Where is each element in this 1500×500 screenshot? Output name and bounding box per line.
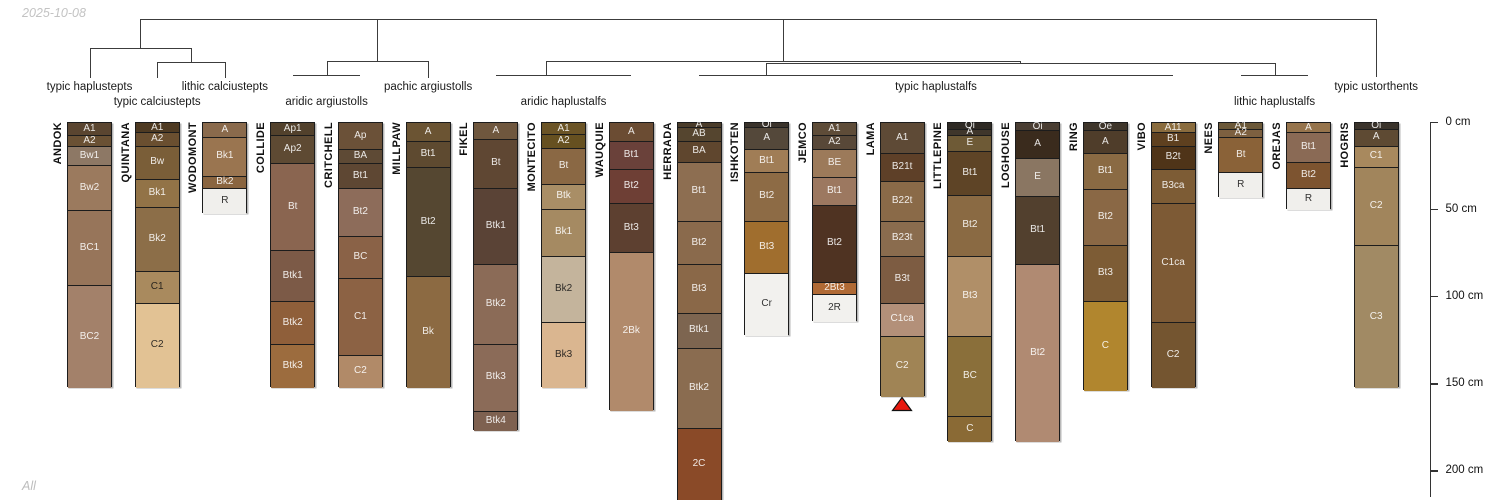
horizon xyxy=(271,163,314,250)
horizon xyxy=(813,123,856,135)
profile-name-label: OREJAS xyxy=(1271,122,1284,170)
horizon xyxy=(339,149,382,163)
profile-column: OiAC1C2C3 xyxy=(1354,122,1399,387)
horizon xyxy=(610,141,653,169)
horizon xyxy=(1152,123,1195,132)
taxon-label: aridic haplustalfs xyxy=(521,96,607,108)
horizon xyxy=(1152,169,1195,204)
horizon xyxy=(339,188,382,237)
horizon xyxy=(136,271,179,302)
horizon xyxy=(339,355,382,388)
profile-name-label: LAMA xyxy=(865,122,878,155)
profile-column: ABk1Bk2R xyxy=(202,122,247,213)
horizon xyxy=(68,210,111,285)
dendrogram-segment xyxy=(90,48,91,79)
horizon xyxy=(948,195,991,256)
dendrogram-segment xyxy=(1376,19,1377,78)
dendrogram-segment xyxy=(327,61,328,75)
horizon xyxy=(678,348,721,428)
horizon xyxy=(1084,189,1127,245)
horizon xyxy=(271,301,314,345)
horizon xyxy=(610,203,653,252)
horizon xyxy=(1355,146,1398,167)
profile-name-label: JEMCO xyxy=(797,122,810,163)
horizon xyxy=(678,428,721,500)
horizon xyxy=(136,179,179,207)
dendrogram-segment xyxy=(1275,63,1276,75)
horizon xyxy=(407,141,450,167)
dendrogram-segment xyxy=(766,63,1275,64)
horizon xyxy=(610,252,653,410)
taxon-label: typic ustorthents xyxy=(1334,81,1418,93)
profile-column: ABt1Bt2R xyxy=(1286,122,1331,209)
horizon xyxy=(881,336,924,397)
depth-tick-label: 200 cm xyxy=(1446,464,1484,476)
horizon xyxy=(1084,123,1127,130)
depth-tick xyxy=(1430,209,1438,210)
horizon xyxy=(813,149,856,177)
depth-tick-label: 0 cm xyxy=(1446,116,1471,128)
horizon xyxy=(203,188,246,214)
depth-tick xyxy=(1430,383,1438,384)
horizon xyxy=(1287,162,1330,188)
dendrogram-segment xyxy=(496,75,632,76)
horizon xyxy=(1287,188,1330,211)
horizon xyxy=(948,129,991,136)
dendrogram-segment xyxy=(377,19,378,61)
horizon xyxy=(881,256,924,303)
taxon-label: lithic calciustepts xyxy=(182,81,268,93)
horizon xyxy=(68,123,111,135)
profile-name-label: CRITCHELL xyxy=(323,122,336,188)
dendrogram-segment xyxy=(699,75,1173,76)
horizon xyxy=(407,167,450,277)
horizon xyxy=(271,250,314,300)
horizon xyxy=(948,135,991,151)
horizon xyxy=(1016,123,1059,130)
profile-name-label: HOGRIS xyxy=(1339,122,1352,168)
depth-axis-line xyxy=(1430,122,1431,497)
horizon xyxy=(1152,146,1195,169)
dendrogram-segment xyxy=(546,61,547,75)
profile-name-label: COLLIDE xyxy=(255,122,268,173)
horizon xyxy=(1016,196,1059,264)
horizon xyxy=(136,146,179,179)
horizon xyxy=(813,294,856,322)
horizon xyxy=(474,139,517,188)
soil-profile-dendrogram-canvas: 2025-10-08 All typic haplusteptstypic ca… xyxy=(0,0,1500,500)
pedon-marker-icon xyxy=(891,396,913,412)
horizon xyxy=(813,282,856,294)
date-label: 2025-10-08 xyxy=(22,6,86,20)
horizon xyxy=(813,177,856,205)
profile-column: OiAEBt1Bt2Bt3BCC xyxy=(947,122,992,441)
horizon xyxy=(1152,132,1195,146)
horizon xyxy=(745,273,788,336)
profile-name-label: RING xyxy=(1068,122,1081,151)
horizon xyxy=(542,184,585,208)
profile-column: A1A2BwBk1Bk2C1C2 xyxy=(135,122,180,387)
horizon xyxy=(1355,167,1398,245)
dendrogram-segment xyxy=(327,61,429,62)
horizon xyxy=(542,209,585,256)
horizon xyxy=(136,123,179,132)
dendrogram-segment xyxy=(428,61,429,79)
depth-tick xyxy=(1430,470,1438,471)
horizon xyxy=(203,176,246,188)
horizon xyxy=(339,123,382,149)
horizon xyxy=(1084,130,1127,153)
horizon xyxy=(474,188,517,265)
horizon xyxy=(1287,123,1330,132)
horizon xyxy=(813,205,856,282)
profile-column: ABtBtk1Btk2Btk3Btk4 xyxy=(473,122,518,430)
profile-column: OiABt1Bt2Bt3Cr xyxy=(744,122,789,334)
profile-column: ABt1Bt2Bk xyxy=(406,122,451,387)
dendrogram-segment xyxy=(766,63,767,75)
profile-column: OeABt1Bt2Bt3C xyxy=(1083,122,1128,390)
profile-name-label: LOGHOUSE xyxy=(1000,122,1013,188)
horizon xyxy=(813,135,856,149)
profile-column: A1A2BEBt1Bt22Bt32R xyxy=(812,122,857,320)
horizon xyxy=(542,322,585,388)
horizon xyxy=(1016,130,1059,158)
dendrogram-segment xyxy=(140,19,1376,20)
dendrogram-segment xyxy=(157,62,158,79)
profile-name-label: MONTECITO xyxy=(526,122,539,191)
depth-tick-label: 100 cm xyxy=(1446,290,1484,302)
dendrogram-segment xyxy=(783,19,784,62)
profile-column: A1A2Bw1Bw2BC1BC2 xyxy=(67,122,112,387)
horizon xyxy=(678,264,721,313)
horizon xyxy=(1084,245,1127,301)
horizon xyxy=(542,256,585,322)
profile-name-label: ISHKOTEN xyxy=(729,122,742,182)
horizon xyxy=(948,256,991,336)
horizon xyxy=(1152,203,1195,321)
horizon xyxy=(68,285,111,388)
dendrogram-segment xyxy=(1241,75,1309,76)
taxon-label: aridic argiustolls xyxy=(285,96,367,108)
horizon xyxy=(745,172,788,221)
horizon xyxy=(881,123,924,153)
horizon xyxy=(339,236,382,278)
taxon-label: pachic argiustolls xyxy=(384,81,472,93)
horizon xyxy=(271,344,314,388)
depth-tick xyxy=(1430,296,1438,297)
horizon xyxy=(474,264,517,344)
horizon xyxy=(1084,301,1127,392)
profile-column: ApBABt1Bt2BCC1C2 xyxy=(338,122,383,387)
profile-name-label: FIKEL xyxy=(458,122,471,156)
horizon xyxy=(881,303,924,336)
horizon xyxy=(407,123,450,140)
dendrogram-segment xyxy=(293,75,361,76)
depth-tick-label: 150 cm xyxy=(1446,377,1484,389)
horizon xyxy=(136,207,179,271)
profile-name-label: VIBO xyxy=(1136,122,1149,151)
horizon xyxy=(948,416,991,442)
horizon xyxy=(610,169,653,204)
horizon xyxy=(1219,129,1262,138)
horizon xyxy=(203,137,246,175)
profile-name-label: QUINTANA xyxy=(120,122,133,182)
dendrogram-segment xyxy=(157,62,225,63)
taxon-label: lithic haplustalfs xyxy=(1234,96,1315,108)
horizon xyxy=(948,151,991,195)
taxon-label: typic calciustepts xyxy=(114,96,201,108)
horizon xyxy=(68,135,111,145)
horizon xyxy=(881,181,924,221)
horizon xyxy=(271,123,314,135)
horizon xyxy=(68,165,111,210)
horizon xyxy=(1219,172,1262,198)
horizon xyxy=(745,149,788,172)
horizon xyxy=(542,123,585,133)
taxon-label: typic haplustalfs xyxy=(895,81,977,93)
horizon xyxy=(948,336,991,416)
horizon xyxy=(542,148,585,185)
profile-column: OiAEBt1Bt2 xyxy=(1015,122,1060,441)
dendrogram-segment xyxy=(90,48,192,49)
horizon xyxy=(678,162,721,221)
horizon xyxy=(474,123,517,139)
horizon xyxy=(745,221,788,273)
horizon xyxy=(203,123,246,137)
profile-name-label: MILLPAW xyxy=(391,122,404,175)
horizon xyxy=(339,278,382,355)
horizon xyxy=(407,276,450,387)
horizon xyxy=(678,127,721,141)
profile-column: A11B1B2tB3caC1caC2 xyxy=(1151,122,1196,387)
horizon xyxy=(271,135,314,163)
profile-column: Ap1Ap2BtBtk1Btk2Btk3 xyxy=(270,122,315,387)
horizon xyxy=(1219,137,1262,172)
horizon xyxy=(1287,132,1330,162)
horizon xyxy=(474,411,517,432)
profile-name-label: NEES xyxy=(1203,122,1216,154)
horizon xyxy=(678,221,721,265)
horizon xyxy=(542,134,585,148)
footer-label: All xyxy=(22,479,36,493)
horizon xyxy=(745,127,788,150)
profile-column: A1A2BtBtkBk1Bk2Bk3 xyxy=(541,122,586,387)
dendrogram-segment xyxy=(225,62,226,79)
horizon xyxy=(474,344,517,410)
profile-name-label: LITTLEPINE xyxy=(932,122,945,189)
profile-name-label: HERRADA xyxy=(662,122,675,180)
depth-tick-label: 50 cm xyxy=(1446,203,1477,215)
horizon xyxy=(1016,158,1059,196)
depth-tick xyxy=(1430,122,1438,123)
profile-column: A1A2BtR xyxy=(1218,122,1263,197)
horizon xyxy=(881,221,924,256)
horizon xyxy=(136,303,179,388)
dendrogram-segment xyxy=(140,19,141,48)
dendrogram-segment xyxy=(191,48,192,62)
horizon xyxy=(136,132,179,146)
horizon xyxy=(678,141,721,162)
horizon xyxy=(1355,129,1398,146)
profile-name-label: WODOMONT xyxy=(187,122,200,193)
profile-column: A1B21tB22tB23tB3tC1caC2 xyxy=(880,122,925,395)
horizon xyxy=(610,123,653,140)
horizon xyxy=(339,163,382,187)
horizon xyxy=(1016,264,1059,442)
profile-column: ABt1Bt2Bt32Bk xyxy=(609,122,654,409)
horizon xyxy=(1084,153,1127,190)
horizon xyxy=(1152,322,1195,388)
taxon-label: typic haplustepts xyxy=(47,81,133,93)
horizon xyxy=(68,146,111,165)
profile-name-label: ANDOK xyxy=(52,122,65,164)
profile-name-label: WAUQUIE xyxy=(594,122,607,177)
profile-column: AABBABt1Bt2Bt3Btk1Btk22C xyxy=(677,122,722,500)
horizon xyxy=(678,313,721,348)
horizon xyxy=(881,153,924,181)
horizon xyxy=(1355,245,1398,388)
